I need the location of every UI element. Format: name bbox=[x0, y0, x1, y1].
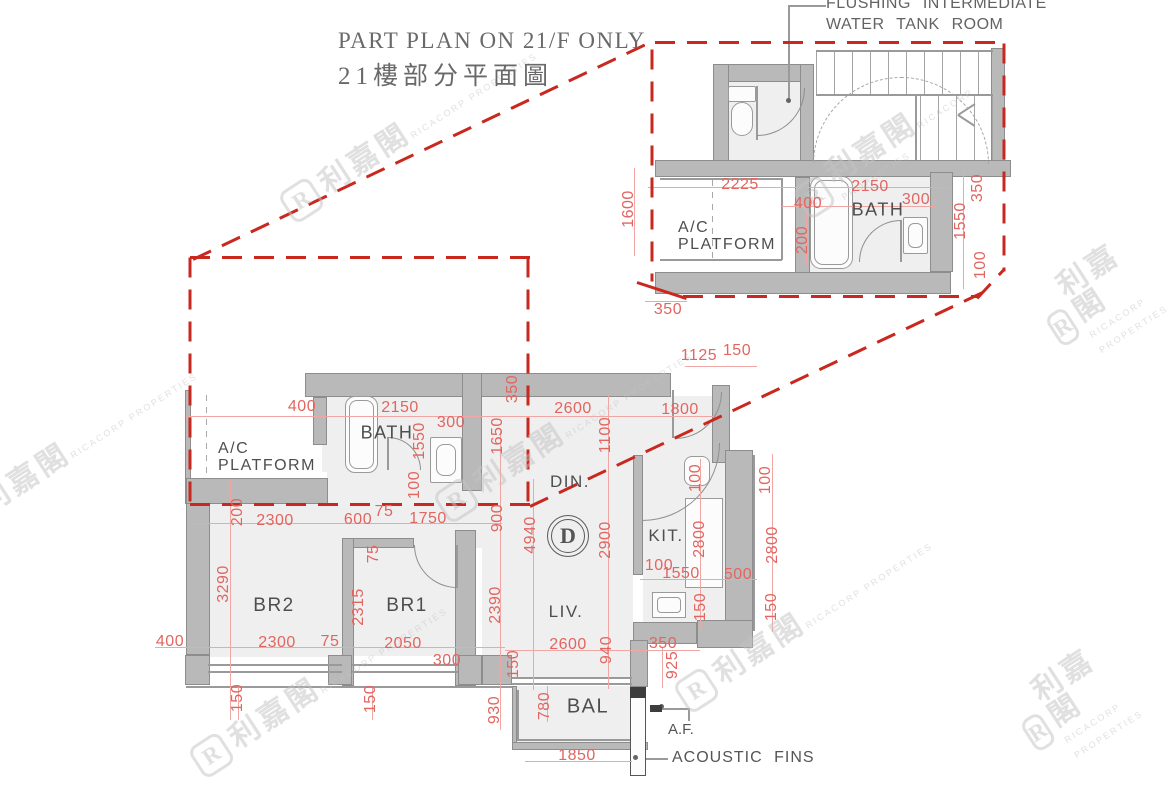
dimension-label: 2900 bbox=[597, 521, 615, 559]
dimension-label: 300 bbox=[902, 191, 930, 209]
water-tank-room-line1: FLUSHING INTERMEDIATE bbox=[826, 0, 1047, 14]
room-label: BR2 bbox=[253, 596, 294, 616]
dimension-label: 150 bbox=[763, 593, 781, 621]
dimension-line bbox=[662, 648, 663, 688]
plan-line bbox=[660, 259, 782, 261]
plan-line bbox=[517, 690, 519, 740]
stair-headroom-arc bbox=[812, 76, 992, 164]
dimension-line bbox=[533, 479, 534, 690]
dimension-label: 2300 bbox=[256, 512, 294, 530]
dimension-label: 300 bbox=[433, 652, 461, 670]
dimension-label: 400 bbox=[288, 398, 316, 416]
dimension-label: 2225 bbox=[721, 176, 759, 194]
wall-segment bbox=[328, 655, 352, 685]
unit-d-badge: D bbox=[547, 515, 589, 557]
dimension-label: 2150 bbox=[381, 399, 419, 417]
dimension-label: 4940 bbox=[522, 516, 540, 554]
plan-line bbox=[208, 664, 342, 666]
dimension-label: 1800 bbox=[661, 401, 699, 419]
dimension-label: 75 bbox=[321, 633, 340, 651]
platform-dashed-line bbox=[206, 395, 207, 475]
dimension-line bbox=[500, 429, 501, 730]
room-label: BATH bbox=[852, 201, 905, 220]
water-tank-room-label: FLUSHING INTERMEDIATE WATER TANK ROOM bbox=[826, 0, 1047, 35]
floor-plan-canvas: PART PLAN ON 21/F ONLY 21樓部分平面圖 FLUSHING… bbox=[0, 0, 1170, 785]
dimension-label: 1750 bbox=[409, 510, 447, 528]
ricacorp-watermark: R利嘉閣RICACORP PROPERTIES bbox=[1027, 226, 1170, 373]
dimension-label: 780 bbox=[536, 692, 554, 720]
dimension-label: 150 bbox=[229, 684, 247, 712]
plan-title-en: PART PLAN ON 21/F ONLY bbox=[338, 28, 646, 54]
dimension-label: 940 bbox=[598, 636, 616, 664]
dimension-label: 1125 bbox=[681, 347, 717, 365]
dimension-label: 2300 bbox=[258, 634, 296, 652]
watermark-cn: 利嘉閣 bbox=[0, 437, 77, 520]
room-label: A/C PLATFORM bbox=[218, 441, 316, 475]
dimension-label: 930 bbox=[486, 696, 504, 724]
dimension-label: 75 bbox=[375, 503, 394, 521]
plan-title-zh: 21樓部分平面圖 bbox=[338, 56, 553, 92]
dimension-label: 1550 bbox=[662, 565, 700, 583]
plan-line bbox=[352, 671, 458, 673]
room-label: BAL bbox=[567, 697, 609, 718]
dimension-label: 925 bbox=[664, 651, 682, 679]
dimension-label: 75 bbox=[365, 545, 383, 564]
dimension-label: 400 bbox=[156, 633, 184, 651]
dimension-label: 2315 bbox=[350, 588, 368, 626]
dimension-label: 2800 bbox=[691, 520, 709, 558]
plan-line bbox=[512, 683, 632, 685]
leader-dot bbox=[633, 755, 638, 760]
dimension-label: 3290 bbox=[215, 565, 233, 603]
plan-line bbox=[816, 50, 993, 52]
wall-segment bbox=[458, 655, 482, 685]
dimension-label: 1650 bbox=[489, 417, 507, 455]
dimension-label: 150 bbox=[723, 342, 751, 360]
dimension-label: 100 bbox=[757, 466, 775, 494]
dimension-label: 350 bbox=[654, 301, 682, 319]
callout-line bbox=[190, 256, 530, 259]
wall-segment bbox=[725, 450, 753, 632]
ricacorp-logo-icon: R bbox=[1044, 306, 1083, 349]
room-label: A/C PLATFORM bbox=[678, 220, 776, 254]
leader-dot bbox=[786, 98, 791, 103]
plan-line bbox=[688, 708, 690, 721]
dimension-label: 2050 bbox=[384, 635, 422, 653]
dimension-label: 150 bbox=[362, 685, 380, 713]
bathroom-kitchen-fixture bbox=[436, 444, 456, 476]
watermark-en: RICACORP PROPERTIES bbox=[1063, 701, 1145, 760]
watermark-en: RICACORP PROPERTIES bbox=[69, 371, 200, 461]
dimension-label: 2600 bbox=[554, 400, 592, 418]
wall-segment bbox=[186, 478, 328, 504]
bathroom-kitchen-fixture bbox=[657, 597, 681, 613]
plan-line bbox=[788, 5, 826, 7]
callout-line bbox=[655, 41, 1005, 44]
wall-segment bbox=[655, 272, 951, 294]
acoustic-fin-detail bbox=[630, 687, 646, 698]
wall-segment bbox=[305, 373, 671, 397]
dashed-arc bbox=[813, 77, 989, 164]
acoustic-fin-bar bbox=[630, 687, 646, 776]
room-label: KIT. bbox=[648, 527, 683, 545]
acoustic-fin-detail bbox=[650, 705, 662, 712]
dimension-label: 100 bbox=[972, 251, 990, 279]
water-tank-room-line2: WATER TANK ROOM bbox=[826, 14, 1047, 35]
wall-segment bbox=[697, 620, 753, 648]
watermark-en: RICACORP PROPERTIES bbox=[804, 541, 935, 631]
dimension-label: 1600 bbox=[620, 190, 638, 228]
watermark-cn: 利嘉閣 bbox=[1051, 238, 1126, 328]
bathroom-kitchen-fixture bbox=[814, 180, 849, 265]
ricacorp-watermark: R利嘉閣RICACORP PROPERTIES bbox=[0, 355, 203, 546]
plan-line bbox=[517, 739, 643, 741]
dimension-label: 2390 bbox=[487, 586, 505, 624]
plan-line bbox=[661, 708, 689, 710]
watermark-en: RICACORP PROPERTIES bbox=[1088, 296, 1170, 355]
dimension-label: 1550 bbox=[952, 202, 970, 240]
af-label: A.F. bbox=[668, 721, 694, 738]
ricacorp-watermark: R利嘉閣RICACORP PROPERTIES bbox=[1002, 631, 1157, 778]
wall-segment bbox=[630, 640, 648, 687]
bathroom-kitchen-fixture bbox=[908, 223, 923, 248]
dimension-label: 400 bbox=[794, 195, 822, 213]
dimension-label: 200 bbox=[794, 226, 812, 254]
dimension-label: 200 bbox=[229, 498, 247, 526]
dimension-label: 1550 bbox=[411, 422, 429, 460]
callout-line bbox=[1003, 44, 1006, 272]
plan-line bbox=[512, 677, 632, 679]
plan-line bbox=[781, 178, 783, 260]
dimension-label: 300 bbox=[437, 414, 465, 432]
dimension-label: 2800 bbox=[764, 526, 782, 564]
dimension-line bbox=[648, 187, 950, 188]
dimension-label: 350 bbox=[504, 375, 522, 403]
dimension-label: 150 bbox=[505, 650, 523, 678]
acoustic-fins-label: ACOUSTIC FINS bbox=[672, 749, 815, 767]
room-label: BATH bbox=[361, 424, 414, 443]
plan-line bbox=[753, 455, 755, 631]
dimension-label: 900 bbox=[489, 504, 507, 532]
dimension-label: 600 bbox=[344, 511, 372, 529]
dimension-label: 2150 bbox=[851, 178, 889, 196]
room-label: LIV. bbox=[549, 603, 584, 621]
callout-line bbox=[189, 258, 192, 507]
callout-line bbox=[683, 295, 979, 298]
dimension-label: 500 bbox=[724, 566, 752, 584]
wall-segment bbox=[713, 64, 729, 166]
dimension-label: 100 bbox=[687, 464, 705, 492]
room-label: BR1 bbox=[386, 596, 427, 616]
dimension-label: 100 bbox=[406, 471, 424, 499]
ricacorp-logo-icon: R bbox=[187, 730, 237, 780]
ricacorp-logo-icon: R bbox=[1019, 711, 1058, 754]
dimension-label: 1100 bbox=[597, 417, 615, 453]
dimension-label: 2600 bbox=[549, 636, 587, 654]
bathroom-kitchen-fixture bbox=[728, 86, 756, 102]
dimension-label: 150 bbox=[692, 593, 710, 621]
wall-segment bbox=[462, 373, 482, 491]
room-label: DIN. bbox=[550, 473, 590, 491]
plan-line bbox=[208, 671, 342, 673]
dimension-line bbox=[685, 366, 757, 367]
callout-line bbox=[527, 258, 530, 507]
wall-segment bbox=[186, 503, 210, 655]
dimension-label: 350 bbox=[969, 174, 987, 202]
watermark-cn: 利嘉閣 bbox=[1026, 643, 1101, 733]
wall-segment bbox=[185, 655, 210, 685]
callout-line bbox=[651, 50, 654, 282]
dimension-label: 1850 bbox=[558, 747, 596, 765]
bathroom-kitchen-fixture bbox=[731, 102, 753, 136]
